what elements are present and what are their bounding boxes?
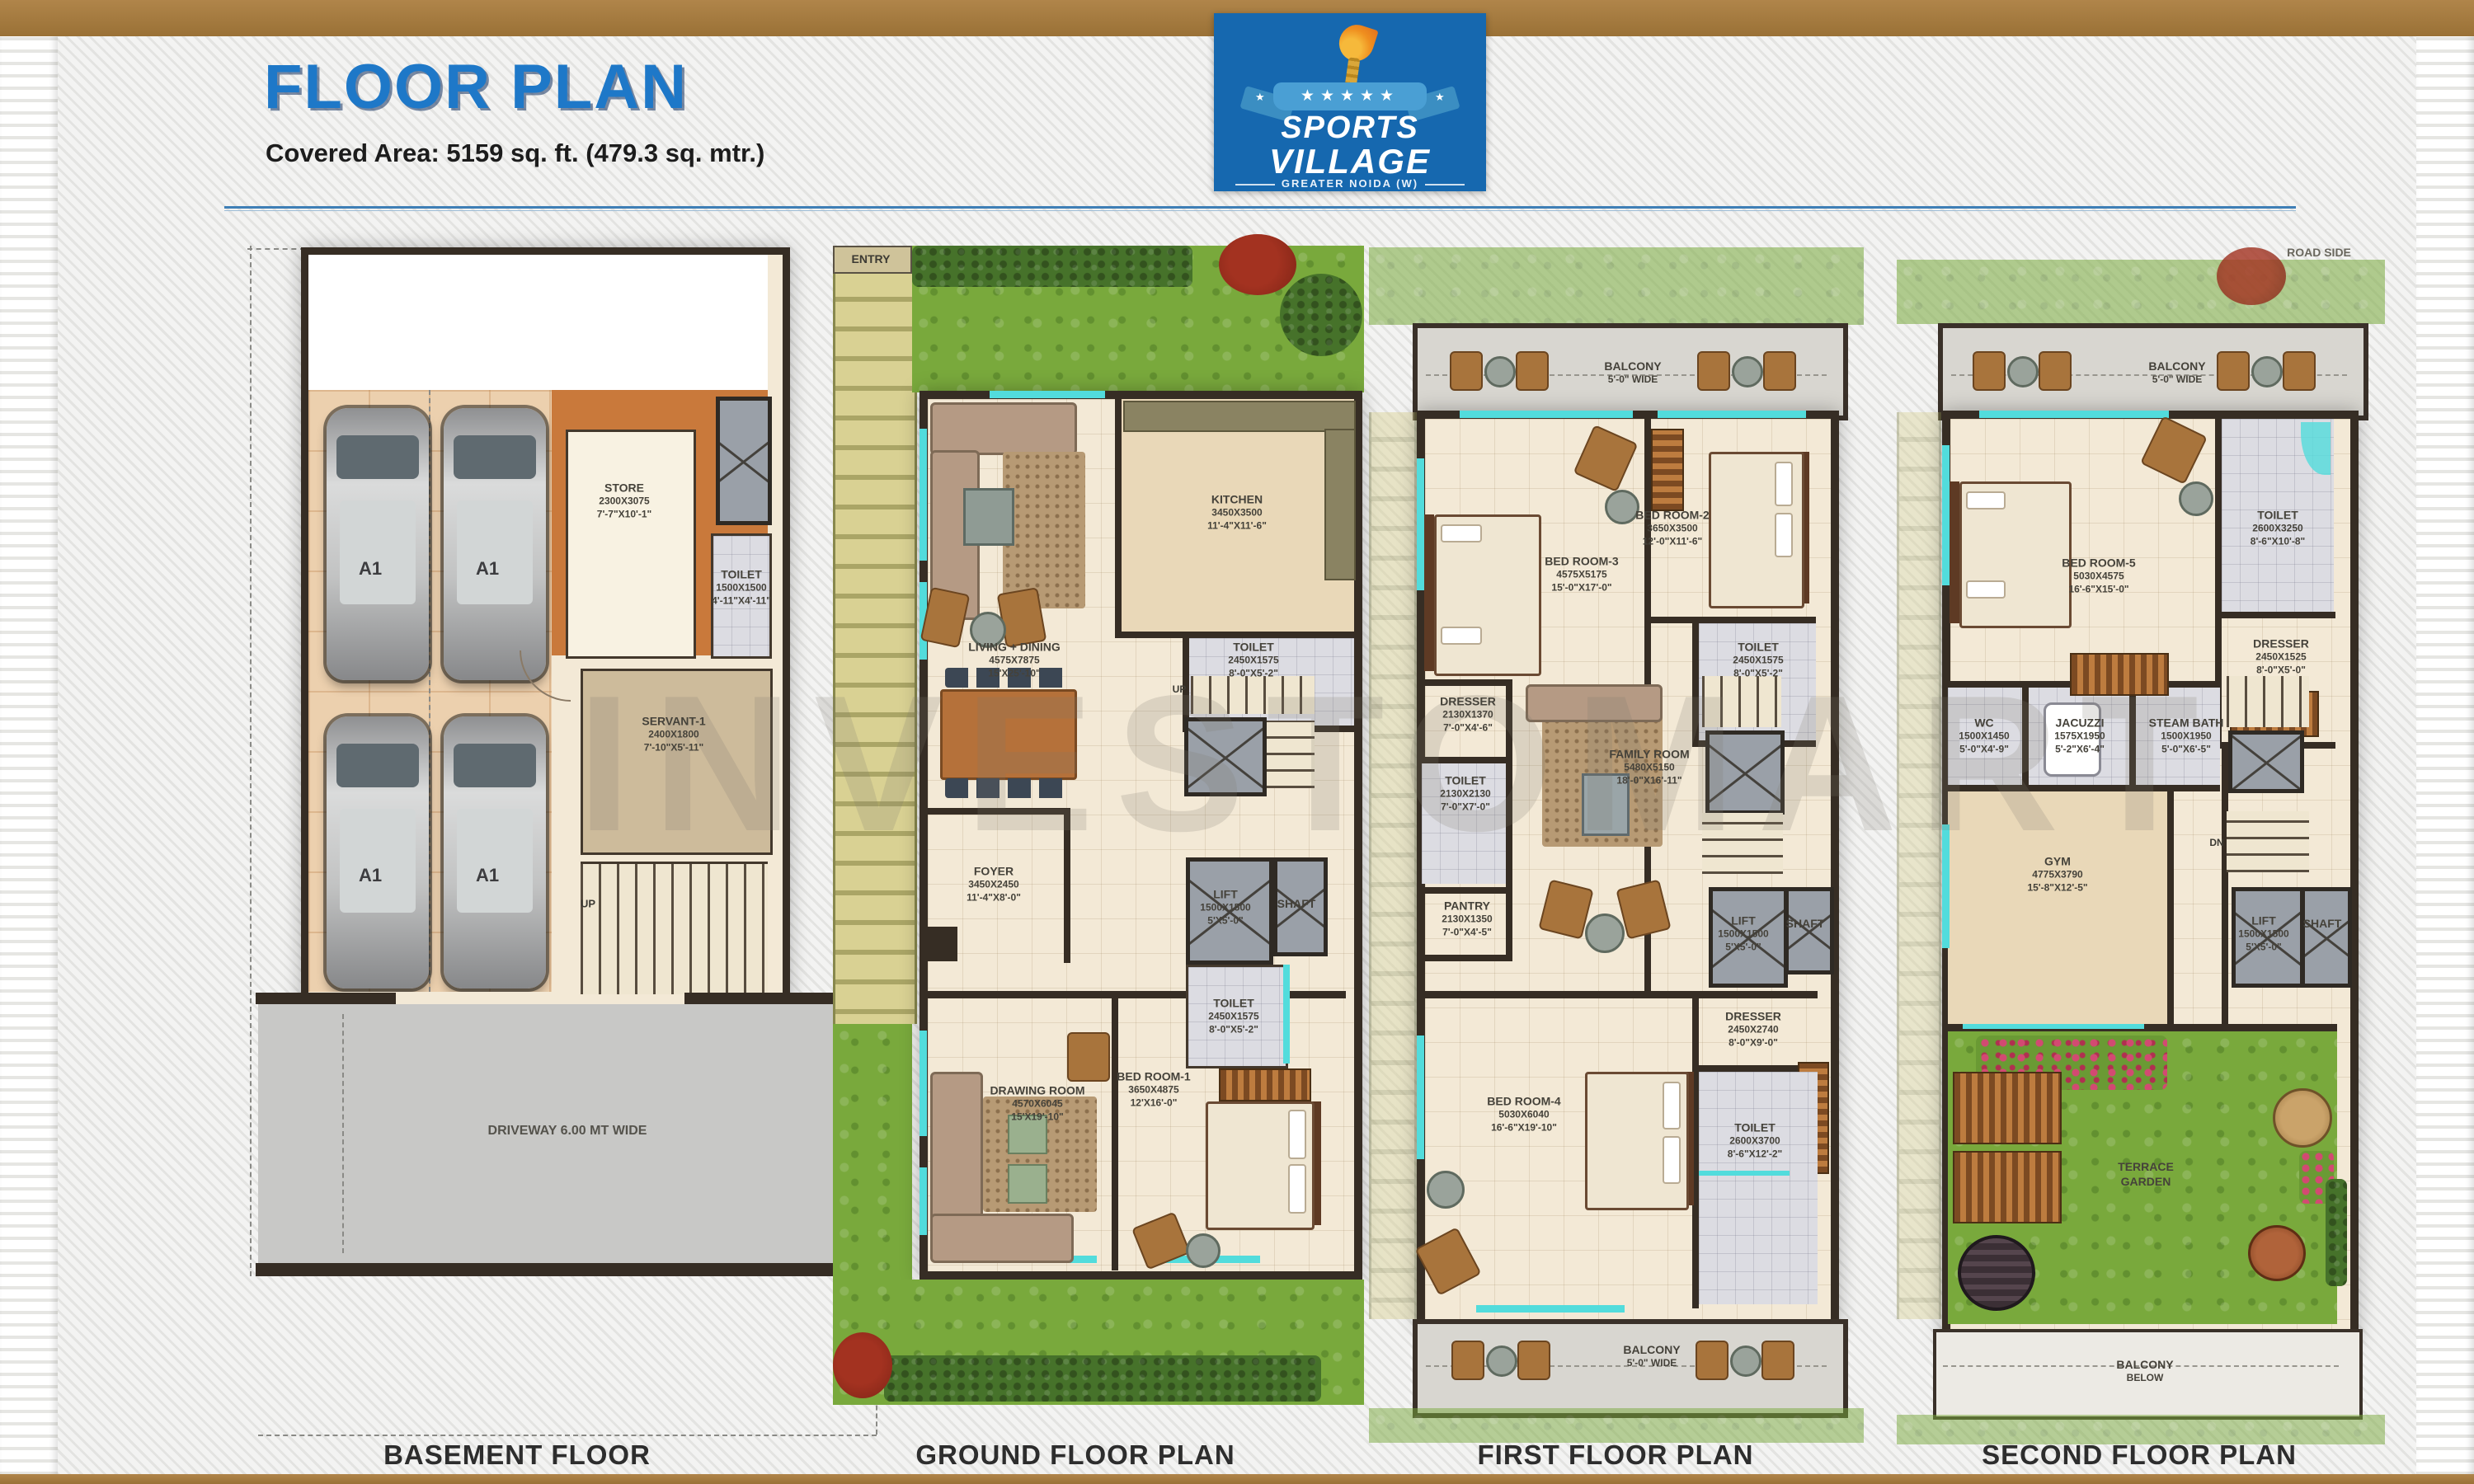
room-label-line: BELOW (2116, 1372, 2173, 1385)
ground-side-path (833, 272, 917, 1024)
gym-floor (1948, 791, 2167, 1024)
chair-icon (1696, 1341, 1729, 1380)
gym-right-wall (2167, 791, 2174, 1027)
pillow-icon (1775, 462, 1793, 506)
red-tree-icon (1219, 234, 1296, 295)
window-strip (1942, 445, 1950, 585)
balcony-chairs-icon (1450, 348, 1545, 392)
room-label-line: TOILET (1440, 773, 1490, 787)
room-label-line: 5'X5'-0" (1200, 914, 1250, 927)
ground-stairs (1191, 676, 1315, 714)
car-plate-label: A1 (359, 865, 382, 886)
balcony-chairs-icon (1451, 1337, 1547, 1382)
shaft-box (2301, 887, 2352, 988)
first-wall-toilet-a-left (1692, 623, 1699, 747)
room-label-line: 1575X1950 (2054, 730, 2105, 744)
red-bush-icon (833, 1332, 892, 1398)
logo-line2: VILLAGE (1214, 142, 1486, 181)
dining-table-icon (940, 689, 1077, 780)
left-star-icon: ★ (1255, 91, 1265, 104)
first-stairs (1702, 676, 1781, 727)
first-floor-label: FIRST FLOOR PLAN (1478, 1439, 1754, 1471)
room-label-bed4: BED ROOM-45030X604016'-6"X19'-10" (1487, 1093, 1560, 1134)
room-label-line: 2600X3700 (1728, 1135, 1782, 1148)
rug-icon (1003, 452, 1085, 608)
bench-icon (2070, 653, 2169, 696)
room-label-family: FAMILY ROOM5480X515018'-0"X16'-11" (1609, 746, 1689, 787)
planter-pot-icon (2248, 1225, 2306, 1281)
sofa-icon (930, 402, 1077, 455)
room-label-line: 5'-2"X6'-4" (2054, 743, 2105, 756)
ground-small-shaft (928, 927, 957, 961)
pillow-icon (1775, 513, 1793, 557)
second-stairs (2227, 676, 2309, 727)
room-label-line: 4575X5175 (1545, 569, 1618, 582)
table-icon (1732, 356, 1763, 387)
pillow-icon (1966, 580, 2006, 599)
room-label-foyer: FOYER3450X245011'-4"X8'-0" (967, 863, 1021, 904)
road-side-label: ROAD SIDE (2287, 246, 2351, 259)
pillow-icon (1441, 627, 1482, 645)
second-wall-wet-bottom (1948, 785, 2220, 791)
first-top-garden-faded (1369, 247, 1864, 325)
room-label-line: SHAFT (1277, 896, 1316, 911)
room-label-line: 3450X3500 (1207, 507, 1267, 520)
room-label-line: 3650X4875 (1117, 1084, 1190, 1097)
window-strip (920, 1031, 927, 1136)
pillow-icon (1966, 491, 2006, 510)
room-label-line: TOILET (1728, 1120, 1782, 1134)
room-label-line: LIFT (2238, 913, 2288, 927)
wardrobe-icon (1219, 1068, 1311, 1101)
room-label-line: 2600X3250 (2251, 523, 2305, 536)
room-label-line: DRESSER (2253, 636, 2309, 650)
basement-dim-line-left (250, 246, 252, 1276)
room-label-line: 5'-0" WIDE (2148, 373, 2205, 387)
second-wall-wet-div2 (2129, 686, 2136, 788)
basement-stairs (581, 862, 768, 994)
room-label-steam: STEAM BATH1500X19505'-0"X6'-5" (2149, 715, 2224, 755)
room-label-line: JACUZZI (2054, 715, 2105, 730)
room-label-line: 2130X1370 (1440, 709, 1496, 722)
room-label-line: 5030X6040 (1487, 1109, 1560, 1122)
room-label-line: STORE (597, 480, 651, 495)
room-label-line: 7'-7"X10'-1" (597, 508, 651, 521)
chair-icon (1517, 1341, 1550, 1380)
first-wall-pantry-top (1422, 887, 1512, 894)
hedge-row-icon (912, 246, 1192, 287)
room-label-line: 2450X1575 (1733, 655, 1783, 668)
room-label-line: 15'X25'-10" (968, 667, 1061, 680)
room-label-servant: SERVANT-12400X18007'-10"X5'-11" (642, 713, 705, 754)
room-label-line: 2400X1800 (642, 729, 705, 742)
chair-icon (1450, 351, 1483, 391)
balcony-top-label-2: BALCONY5'-0" WIDE (2148, 359, 2205, 387)
room-label-line: TOILET (1733, 639, 1783, 654)
fire-pit-icon (1958, 1235, 2035, 1311)
room-label-line: 2450X1575 (1228, 655, 1278, 668)
first-wall-pantry-bottom (1422, 955, 1512, 961)
room-label-drawing: DRAWING ROOM4570X604515'X19'-10" (990, 1082, 1084, 1123)
table-icon (2007, 356, 2039, 387)
driveway-bottom-wall (256, 1263, 878, 1276)
room-label-line: 8'-0"X9'-0" (1725, 1036, 1781, 1050)
chair-icon (2283, 351, 2316, 391)
room-label-line: 5'-0" WIDE (1604, 373, 1661, 387)
room-label-line: 7'-0"X4'-6" (1440, 721, 1496, 735)
pillow-icon (1441, 524, 1482, 542)
kitchen-counter-icon (1324, 429, 1356, 580)
balcony-chairs-icon (1697, 348, 1793, 392)
page-title: FLOOR PLAN (264, 51, 688, 123)
room-label-line: 4'-11"X4'-11" (712, 594, 771, 608)
sofa-icon (930, 1214, 1074, 1263)
room-label-toilet-s: TOILET2600X32508'-6"X10'-8" (2251, 507, 2305, 547)
room-label-line: 8'-0"X5'-2" (1208, 1023, 1258, 1036)
second-floor-label: SECOND FLOOR PLAN (1982, 1439, 2297, 1471)
cushion-icon (1008, 1164, 1047, 1204)
room-label-line: 12'-0"X11'-6" (1635, 535, 1709, 548)
room-label-line: 15'X19'-10" (990, 1111, 1084, 1124)
room-label-shaft-s: SHAFT (2303, 916, 2342, 931)
balcony-chairs-icon (1696, 1337, 1791, 1382)
room-label-bed2: BED ROOM-23650X350012'-0"X11'-6" (1635, 507, 1709, 547)
window-strip (1658, 411, 1806, 418)
basement-servant-room (581, 669, 773, 855)
room-label-line: 18'-0"X16'-11" (1609, 774, 1689, 787)
window-strip (920, 429, 927, 561)
kitchen-bottom-wall (1115, 632, 1354, 638)
first-side-strip (1369, 412, 1417, 1319)
room-label-line: BED ROOM-4 (1487, 1093, 1560, 1108)
room-label-lift-s: LIFT1500X15005'X5'-0" (2238, 913, 2288, 953)
wardrobe-icon (1651, 429, 1684, 511)
window-strip (1417, 1036, 1424, 1159)
ground-side-lawn (833, 1024, 912, 1280)
right-edge-decor (2416, 0, 2474, 1484)
room-label-line: 12'X16'-0" (1117, 1097, 1190, 1110)
dining-chairs-row-icon (945, 778, 1069, 798)
first-mid-wall (1422, 991, 1818, 998)
room-label-line: LIFT (1718, 913, 1768, 927)
room-label-bed3: BED ROOM-34575X517515'-0"X17'-0" (1545, 553, 1618, 594)
left-edge-decor (0, 0, 58, 1484)
room-label-line: 5'X5'-0" (2238, 941, 2288, 954)
room-label-line: TOILET (2251, 507, 2305, 522)
room-label-line: SHAFT (1786, 916, 1825, 931)
pouf-icon (1427, 1171, 1465, 1209)
room-label-store: STORE2300X30757'-7"X10'-1" (597, 480, 651, 520)
table-icon (2251, 356, 2283, 387)
pillow-icon (1288, 1110, 1306, 1159)
up-label: UP (1173, 683, 1187, 695)
second-wall-wet-div1 (2022, 686, 2029, 788)
first-wall-dresser-top (1422, 679, 1512, 686)
room-label-toilet: TOILET1500X15004'-11"X4'-11" (712, 566, 771, 607)
room-label-line: 5'-0" WIDE (1623, 1357, 1680, 1370)
room-label-line: 8'-6"X12'-2" (1728, 1148, 1782, 1161)
room-label-line: 8'-0"X5'-0" (2253, 664, 2309, 677)
room-label-shaft-f: SHAFT (1786, 916, 1825, 931)
first-toilet-c-floor (1699, 1072, 1818, 1304)
window-strip (1979, 411, 2169, 418)
car-plate-label: A1 (476, 865, 499, 886)
lift-shaft-icon (2228, 730, 2304, 793)
room-label-line: STEAM BATH (2149, 715, 2224, 730)
room-label-line: 15'-8"X12'-5" (2027, 881, 2087, 895)
window-strip (1942, 824, 1950, 948)
driveway-label: DRIVEWAY 6.00 MT WIDE (488, 1124, 647, 1139)
hedge-row-icon (884, 1355, 1321, 1402)
room-label-toilet-b: TOILET2130X21307'-0"X7'-0" (1440, 773, 1490, 813)
chair-icon (2217, 351, 2250, 391)
red-tree-icon (2217, 247, 2286, 305)
chair-icon (2039, 351, 2072, 391)
kitchen-left-wall (1115, 399, 1122, 636)
room-label-line: 1500X1500 (2238, 928, 2288, 942)
room-label-wc: WC1500X14505'-0"X4'-9" (1959, 715, 2009, 755)
bottom-frame-bar (0, 1474, 2474, 1484)
room-label-line: DRAWING ROOM (990, 1082, 1084, 1097)
basement-entry-court (308, 255, 768, 390)
terrace-label-line2: GARDEN (2118, 1174, 2174, 1189)
window-strip (1460, 411, 1633, 418)
balcony-chairs-icon (2217, 348, 2312, 392)
room-label-line: 2130X1350 (1442, 913, 1492, 927)
up-label: UP (581, 898, 595, 910)
window-strip (1963, 1024, 2144, 1029)
table-icon (1484, 356, 1516, 387)
room-label-line: 1500X1500 (1200, 902, 1250, 915)
basement-store-room (566, 430, 696, 659)
room-label-line: FOYER (967, 863, 1021, 878)
room-label-toilet1: TOILET2450X15758'-0"X5'-2" (1228, 639, 1278, 679)
room-label-line: 16'-6"X15'-0" (2062, 583, 2135, 596)
foyer-right-wall (1064, 808, 1070, 963)
first-wall-bed2-bottom (1651, 617, 1816, 623)
room-label-line: 7'-10"X5'-11" (642, 741, 705, 754)
room-label-toilet2: TOILET2450X15758'-0"X5'-2" (1208, 995, 1258, 1036)
ground-floor-label: GROUND FLOOR PLAN (915, 1439, 1235, 1471)
room-label-line: PANTRY (1442, 898, 1492, 913)
first-wall-left-rooms (1506, 679, 1512, 960)
balcony-bottom-label: BALCONY5'-0" WIDE (1623, 1342, 1680, 1370)
room-label-pantry: PANTRY2130X13507'-0"X4'-5" (1442, 898, 1492, 938)
room-label-line: 16'-6"X19'-10" (1487, 1121, 1560, 1134)
room-label-line: WC (1959, 715, 2009, 730)
ground-stairs-side (1267, 721, 1315, 788)
entry-label: ENTRY (852, 252, 891, 265)
pillow-icon (1663, 1136, 1681, 1184)
driveway-top-wall-left (256, 993, 396, 1004)
foyer-top-wall (928, 808, 1070, 815)
room-label-line: 8'-0"X5'-2" (1733, 667, 1783, 680)
logo-tagline: GREATER NOIDA (W) (1214, 177, 1486, 190)
second-side-strip (1897, 412, 1941, 1319)
second-wall-toilet-bottom (2222, 612, 2335, 618)
room-label-line: 1500X1500 (1718, 928, 1768, 942)
dn-label: DN (2209, 837, 2223, 848)
table-icon (1486, 1345, 1517, 1377)
parking-slot-divider (429, 390, 430, 992)
room-label-line: 2130X2130 (1440, 788, 1490, 801)
basement-plot-line-bottom (258, 1435, 877, 1436)
stars-ribbon: ★★★★★ (1273, 82, 1427, 110)
shower-strip (1283, 965, 1290, 1064)
balcony-chairs-icon (1973, 348, 2068, 392)
pouf-icon (1585, 913, 1625, 953)
room-label-lift: LIFT1500X15005'X5'-0" (1200, 886, 1250, 927)
room-label-line: SERVANT-1 (642, 713, 705, 728)
room-label-living: LIVING + DINING4575X787515'X25'-10" (968, 639, 1061, 679)
room-label-line: 5030X4575 (2062, 571, 2135, 584)
bed1-left-wall (1112, 998, 1118, 1270)
room-label-lift-f: LIFT1500X15005'X5'-0" (1718, 913, 1768, 953)
window-strip (1476, 1305, 1625, 1313)
second-stairs-lower (2227, 811, 2309, 872)
coffee-table-icon (963, 488, 1014, 546)
floor-plan-brochure: FLOOR PLAN Covered Area: 5159 sq. ft. (4… (0, 0, 2474, 1484)
wicker-chair-icon (2273, 1088, 2332, 1148)
armchair-icon (1067, 1032, 1110, 1082)
sofa-icon (1526, 684, 1663, 722)
room-label-dresser-b: DRESSER2450X27408'-0"X9'-0" (1725, 1008, 1781, 1049)
covered-area-text: Covered Area: 5159 sq. ft. (479.3 sq. mt… (266, 139, 764, 168)
room-label-dresser-a: DRESSER2130X13707'-0"X4'-6" (1440, 693, 1496, 734)
room-label-gym: GYM4775X379015'-8"X12'-5" (2027, 853, 2087, 894)
terrace-garden-label: TERRACE GARDEN (2118, 1159, 2174, 1189)
room-label-line: BED ROOM-1 (1117, 1068, 1190, 1083)
room-label-line: 1500X1450 (1959, 730, 2009, 744)
room-label-toilet-a: TOILET2450X15758'-0"X5'-2" (1733, 639, 1783, 679)
table-icon (1730, 1345, 1761, 1377)
bush-icon (1280, 274, 1362, 356)
room-label-dresser-s: DRESSER2450X15258'-0"X5'-0" (2253, 636, 2309, 676)
room-label-line: TOILET (1208, 995, 1258, 1010)
chair-icon (1761, 1341, 1794, 1380)
bed-headboard-icon (1424, 514, 1434, 671)
room-label-line: SHAFT (2303, 916, 2342, 931)
room-label-line: BED ROOM-3 (1545, 553, 1618, 568)
room-label-line: 5'X5'-0" (1718, 941, 1768, 954)
pouf-icon (2179, 481, 2213, 516)
car-icon (327, 408, 429, 680)
room-label-line: BALCONY (2116, 1357, 2173, 1372)
room-label-line: TOILET (712, 566, 771, 581)
pillow-icon (1663, 1082, 1681, 1129)
hedge-strip-icon (2326, 1179, 2347, 1286)
sports-village-logo: ★★★★★ ★ ★ SPORTS VILLAGE GREATER NOIDA (… (1214, 13, 1486, 191)
basement-house-outline (301, 247, 790, 1014)
room-label-line: 4775X3790 (2027, 869, 2087, 882)
car-icon (444, 716, 546, 989)
room-label-line: 1500X1950 (2149, 730, 2224, 744)
room-label-line: 2450X1575 (1208, 1011, 1258, 1024)
room-label-line: BED ROOM-5 (2062, 555, 2135, 570)
sun-lounger-icon (1953, 1151, 2062, 1223)
basement-floor-label: BASEMENT FLOOR (383, 1439, 651, 1471)
second-top-garden-faded (1897, 260, 2385, 324)
room-label-toilet-c: TOILET2600X37008'-6"X12'-2" (1728, 1120, 1782, 1160)
room-label-line: BALCONY (2148, 359, 2205, 373)
second-lift-left-wall (2222, 749, 2228, 1027)
basement-parking-area (308, 390, 552, 992)
header-divider-light (224, 210, 2296, 211)
room-label-line: GYM (2027, 853, 2087, 868)
logo-line1: SPORTS (1214, 110, 1486, 146)
room-label-line: 3450X2450 (967, 879, 1021, 892)
car-icon (444, 408, 546, 680)
room-label-line: TOILET (1228, 639, 1278, 654)
first-bottom-lawn-faded (1369, 1408, 1864, 1443)
room-label-bed5: BED ROOM-55030X457516'-6"X15'-0" (2062, 555, 2135, 595)
room-label-line: BALCONY (1623, 1342, 1680, 1357)
chair-icon (1763, 351, 1796, 391)
lift-shaft-icon (716, 397, 772, 525)
right-star-icon: ★ (1435, 91, 1445, 104)
room-label-line: 2450X2740 (1725, 1024, 1781, 1037)
room-label-line: 15'-0"X17'-0" (1545, 581, 1618, 594)
room-label-shaft: SHAFT (1277, 896, 1316, 911)
room-label-line: 4570X6045 (990, 1098, 1084, 1111)
lift-shaft-icon (1705, 730, 1785, 815)
room-label-line: 4575X7875 (968, 655, 1061, 668)
sun-lounger-icon (1953, 1072, 2062, 1144)
room-label-line: 7'-0"X7'-0" (1440, 801, 1490, 814)
room-label-kitchen: KITCHEN3450X350011'-4"X11'-6" (1207, 491, 1267, 532)
room-label-line: BED ROOM-2 (1635, 507, 1709, 522)
room-label-line: BALCONY (1604, 359, 1661, 373)
chair-icon (1516, 351, 1549, 391)
room-label-line: 5'-0"X6'-5" (2149, 743, 2224, 756)
chair-icon (1697, 351, 1730, 391)
room-label-line: 1500X1500 (712, 582, 771, 595)
lift-shaft-icon (1184, 717, 1267, 796)
room-label-line: LIFT (1200, 886, 1250, 901)
chair-icon (1973, 351, 2006, 391)
room-label-line: 3650X3500 (1635, 523, 1709, 536)
room-label-line: 5480X5150 (1609, 762, 1689, 775)
header-divider (224, 206, 2296, 209)
room-label-line: 8'-0"X5'-2" (1228, 667, 1278, 680)
window-strip (920, 1167, 927, 1235)
room-label-line: DRESSER (1725, 1008, 1781, 1023)
kitchen-counter-icon (1123, 401, 1356, 432)
car-plate-label: A1 (476, 558, 499, 580)
ribbon-stars-icon: ★★★★★ (1273, 82, 1427, 110)
balcony-top-label: BALCONY5'-0" WIDE (1604, 359, 1661, 387)
room-label-line: 11'-4"X8'-0" (967, 891, 1021, 904)
car-plate-label: A1 (359, 558, 382, 580)
room-label-line: LIVING + DINING (968, 639, 1061, 654)
balcony-below-label: BALCONYBELOW (2116, 1357, 2173, 1385)
first-stairs-lower (1702, 813, 1783, 874)
room-label-line: KITCHEN (1207, 491, 1267, 506)
room-label-bed1: BED ROOM-13650X487512'X16'-0" (1117, 1068, 1190, 1109)
driveway-dash (342, 1014, 344, 1253)
room-label-line: DRESSER (1440, 693, 1496, 708)
shower-strip (1699, 1171, 1790, 1176)
pillow-icon (1288, 1164, 1306, 1214)
room-label-line: 2300X3075 (597, 495, 651, 509)
terrace-label-line1: TERRACE (2118, 1159, 2174, 1174)
room-label-line: 5'-0"X4'-9" (1959, 743, 2009, 756)
room-label-line: 11'-4"X11'-6" (1207, 519, 1267, 533)
room-label-line: 8'-6"X10'-8" (2251, 535, 2305, 548)
room-label-line: 7'-0"X4'-5" (1442, 926, 1492, 939)
basement-dim-line-top (247, 248, 305, 250)
pouf-icon (1605, 490, 1639, 524)
